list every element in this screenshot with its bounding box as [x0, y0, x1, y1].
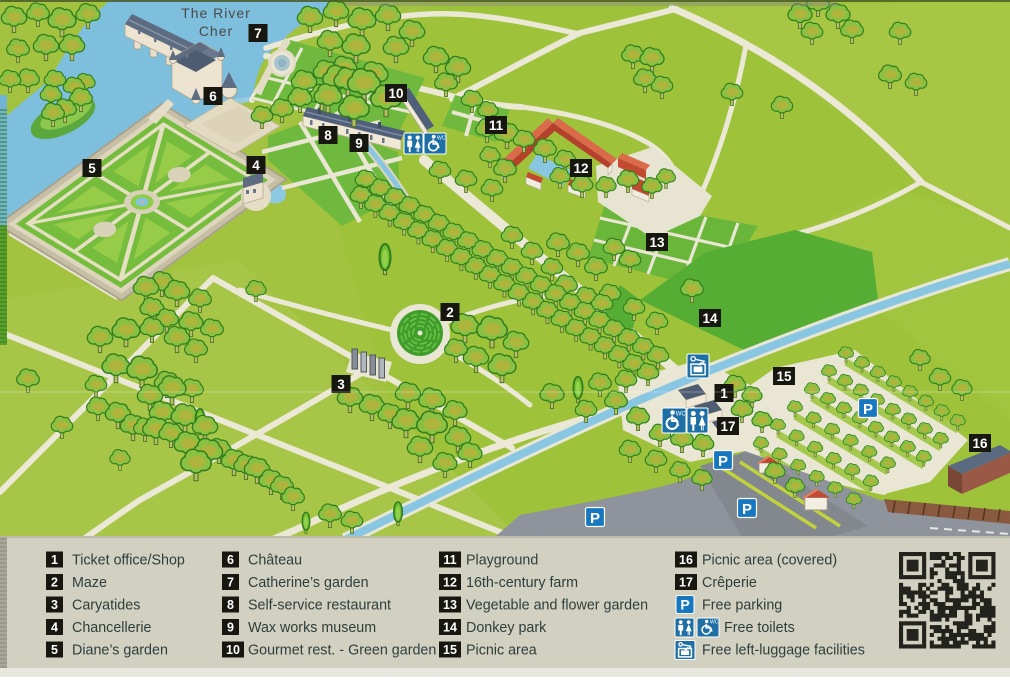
svg-text:12: 12: [443, 576, 457, 590]
svg-text:Château: Château: [248, 553, 302, 569]
svg-text:Catherine’s garden: Catherine’s garden: [248, 575, 369, 591]
svg-text:Chancellerie: Chancellerie: [72, 620, 152, 636]
svg-text:Cher: Cher: [199, 23, 233, 39]
svg-text:7: 7: [254, 26, 262, 41]
svg-text:P: P: [863, 401, 873, 418]
svg-text:P: P: [742, 501, 752, 518]
svg-text:8: 8: [324, 128, 332, 143]
svg-text:Donkey park: Donkey park: [466, 620, 547, 636]
svg-text:15: 15: [443, 643, 457, 657]
svg-text:10: 10: [226, 643, 240, 657]
svg-text:3: 3: [51, 598, 58, 612]
svg-text:Wax works museum: Wax works museum: [248, 620, 376, 636]
svg-text:Maze: Maze: [72, 575, 107, 591]
svg-text:1: 1: [51, 553, 58, 567]
svg-text:Diane’s garden: Diane’s garden: [72, 643, 168, 659]
svg-text:6: 6: [209, 89, 217, 104]
svg-text:WC: WC: [437, 135, 446, 141]
svg-text:Vegetable and flower garden: Vegetable and flower garden: [466, 598, 648, 614]
svg-text:Free parking: Free parking: [702, 598, 782, 614]
svg-text:10: 10: [388, 86, 403, 101]
svg-text:14: 14: [702, 311, 718, 326]
svg-text:1: 1: [720, 386, 728, 401]
svg-text:4: 4: [252, 158, 260, 173]
svg-text:2: 2: [446, 305, 454, 320]
svg-text:Free toilets: Free toilets: [724, 620, 795, 636]
svg-text:WC: WC: [710, 620, 719, 626]
svg-text:11: 11: [443, 553, 456, 567]
svg-text:9: 9: [355, 136, 363, 151]
svg-text:17: 17: [679, 576, 693, 590]
svg-text:16: 16: [972, 436, 988, 451]
svg-text:7: 7: [227, 576, 234, 590]
svg-text:12: 12: [573, 161, 588, 176]
svg-text:16th-century farm: 16th-century farm: [466, 575, 578, 591]
svg-text:Picnic area (covered): Picnic area (covered): [702, 553, 837, 569]
svg-text:11: 11: [489, 118, 504, 133]
svg-text:8: 8: [227, 598, 234, 612]
svg-text:Playground: Playground: [466, 553, 538, 569]
svg-text:2: 2: [51, 576, 58, 590]
svg-text:WC: WC: [676, 412, 687, 418]
svg-text:4: 4: [51, 621, 58, 635]
svg-text:9: 9: [227, 621, 234, 635]
svg-text:15: 15: [776, 369, 792, 384]
svg-text:Picnic area: Picnic area: [466, 643, 537, 659]
svg-text:P: P: [680, 597, 689, 613]
svg-text:14: 14: [443, 621, 457, 635]
svg-text:Self-service restaurant: Self-service restaurant: [248, 598, 391, 614]
svg-text:Ticket office/Shop: Ticket office/Shop: [72, 553, 185, 569]
svg-text:13: 13: [649, 235, 665, 250]
svg-text:P: P: [718, 453, 728, 470]
svg-text:3: 3: [337, 377, 345, 392]
svg-text:6: 6: [227, 553, 234, 567]
svg-text:13: 13: [443, 598, 457, 612]
svg-text:The River: The River: [181, 5, 251, 21]
svg-text:P: P: [590, 510, 600, 527]
svg-text:Free left-luggage facilities: Free left-luggage facilities: [702, 643, 865, 659]
svg-text:17: 17: [720, 419, 735, 434]
svg-text:5: 5: [88, 161, 96, 176]
svg-text:16: 16: [679, 553, 693, 567]
svg-text:5: 5: [51, 643, 58, 657]
svg-text:Caryatides: Caryatides: [72, 598, 140, 614]
svg-text:Crêperie: Crêperie: [702, 575, 757, 591]
svg-text:Gourmet rest. - Green garden: Gourmet rest. - Green garden: [248, 643, 436, 659]
